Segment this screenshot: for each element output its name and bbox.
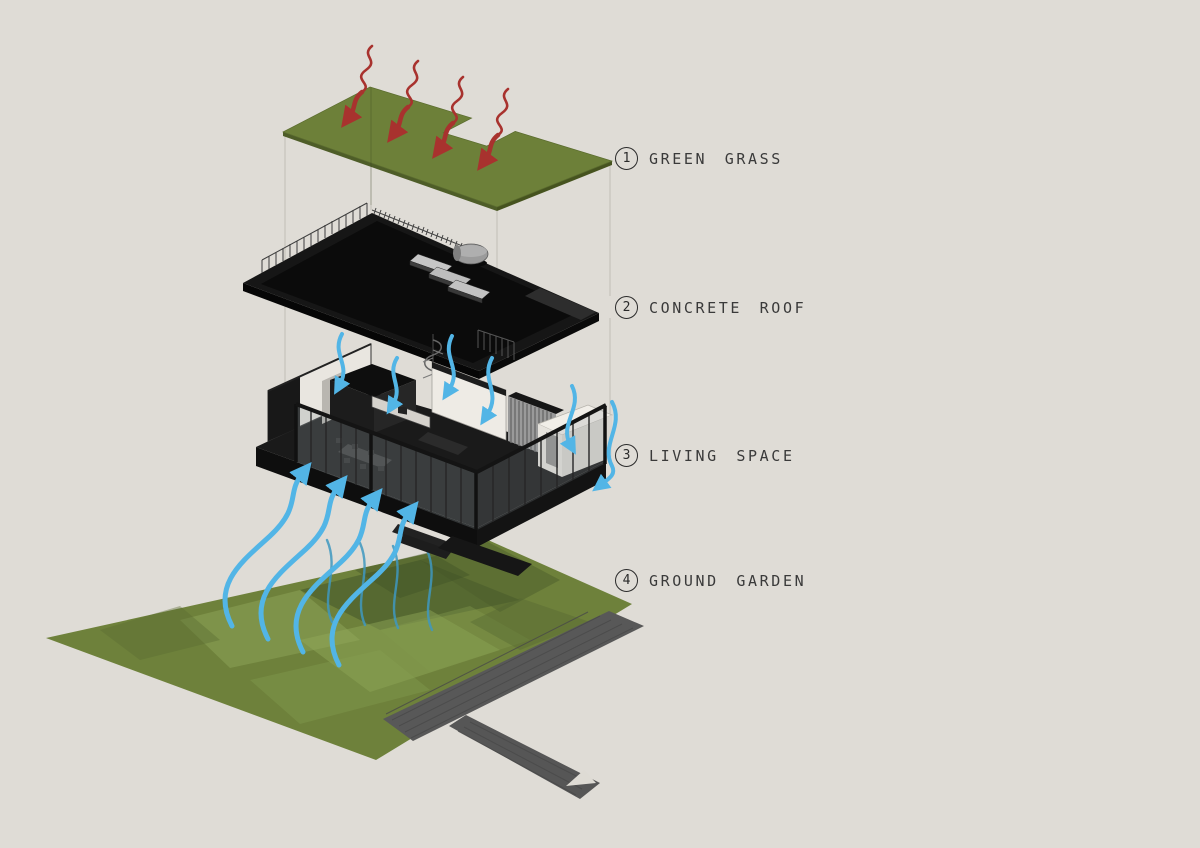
number-circle-icon: 3 xyxy=(615,444,638,467)
water-tank xyxy=(453,244,488,267)
legend-label-living-space: LIVING SPACE xyxy=(649,447,795,465)
number-circle-icon: 4 xyxy=(615,569,638,592)
legend-label-ground-garden: GROUND GARDEN xyxy=(649,572,806,590)
diagram-canvas xyxy=(0,0,1200,848)
number-circle-icon: 2 xyxy=(615,296,638,319)
number-circle-icon: 1 xyxy=(615,147,638,170)
legend-item-ground-garden: 4 GROUND GARDEN xyxy=(615,569,806,592)
legend-item-living-space: 3 LIVING SPACE xyxy=(615,444,795,467)
exploded-axonometric-diagram: 1 GREEN GRASS 2 CONCRETE ROOF 3 LIVING S… xyxy=(0,0,1200,848)
legend-label-green-grass: GREEN GRASS xyxy=(649,150,783,168)
legend-label-concrete-roof: CONCRETE ROOF xyxy=(649,299,806,317)
legend-item-concrete-roof: 2 CONCRETE ROOF xyxy=(615,296,806,319)
legend-item-green-grass: 1 GREEN GRASS xyxy=(615,147,783,170)
